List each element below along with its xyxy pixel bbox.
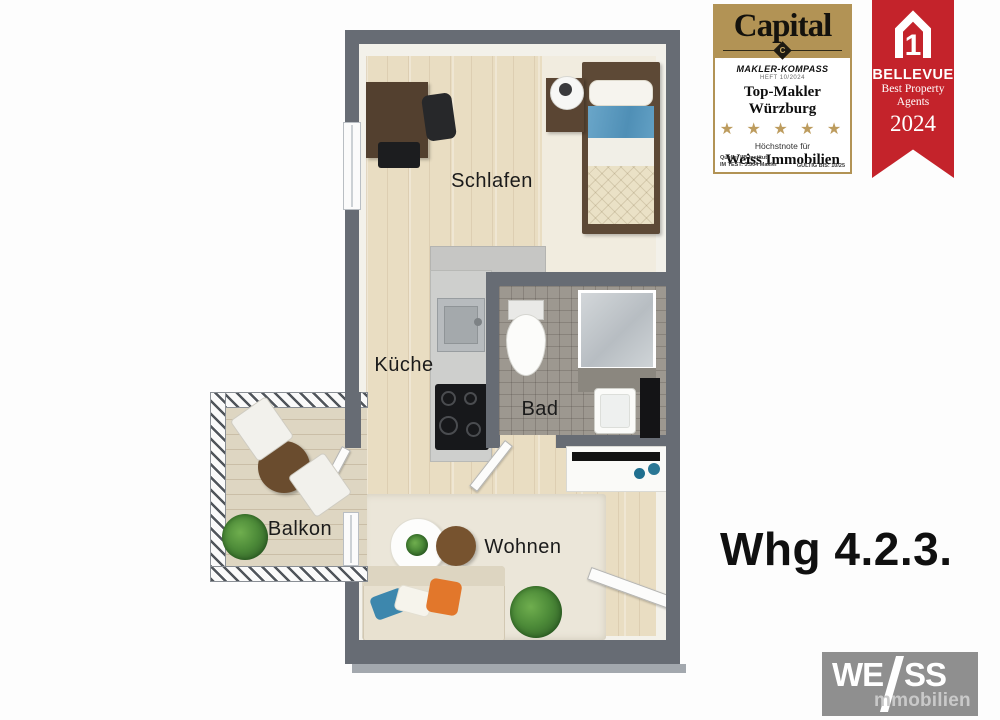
balcony-railing-bottom — [210, 566, 368, 582]
capital-source-line1: Quelle: IIB Institut — [720, 155, 777, 162]
shower — [578, 290, 656, 370]
capital-source-line2: IM TEST: 3.504 Makler — [720, 162, 777, 169]
burner-3 — [439, 416, 458, 435]
room-label-schlafen: Schlafen — [432, 170, 552, 193]
burner-4 — [466, 422, 481, 437]
capital-award-title: Top-Makler Würzburg — [715, 84, 850, 118]
logo-we-text: WE — [832, 656, 883, 694]
capital-brand-text: Capital — [734, 6, 832, 46]
house-number-text: 1 — [905, 29, 922, 60]
capital-subtitle: Höchstnote für — [715, 141, 850, 151]
desk-chair — [421, 92, 457, 142]
bath-wall-top — [486, 272, 666, 286]
balcony-junction-wall — [345, 392, 361, 448]
bed-sheet — [588, 138, 654, 166]
bath-cabinet-black — [640, 378, 660, 438]
sofa-pillow-orange — [425, 577, 462, 616]
capital-badge-body: MAKLER-KOMPASS HEFT 10/2024 Top-Makler W… — [715, 58, 850, 172]
bath-wall-bottom-left — [486, 435, 500, 448]
bed-quilt — [588, 166, 654, 224]
kitchen-faucet — [474, 318, 482, 326]
capital-issue-text: HEFT 10/2024 — [715, 75, 850, 81]
desk-stool — [378, 142, 420, 168]
window-left — [343, 122, 361, 210]
bellevue-award-line1: Best Property — [872, 83, 954, 96]
wall-top — [345, 30, 680, 44]
room-label-kueche: Küche — [354, 354, 454, 377]
wall-left-upper — [345, 30, 359, 410]
bellevue-brand-text: BELLEVUE — [872, 67, 954, 83]
bedside-lamp-top — [559, 83, 572, 96]
capital-emblem-letter: C — [776, 44, 789, 57]
apartment-number-label: Whg 4.2.3. — [720, 522, 952, 576]
weiss-immobilien-logo: WE SS mmobilien — [822, 652, 978, 716]
bed-blanket-blue — [588, 106, 654, 138]
floor-plant — [510, 586, 562, 638]
sideboard-shelf-black — [572, 452, 660, 461]
balcony-railing-left — [210, 392, 226, 582]
bellevue-award-ribbon: 1 BELLEVUE Best Property Agents 2024 — [872, 0, 954, 178]
five-stars-icon: ★ ★ ★ ★ ★ — [715, 119, 850, 139]
capital-fineprint: Quelle: IIB Institut IM TEST: 3.504 Makl… — [720, 155, 845, 169]
bellevue-year: 2024 — [872, 111, 954, 137]
wall-right — [666, 30, 680, 665]
capital-c-emblem-icon: C — [773, 41, 791, 59]
sideboard-bowl-2 — [648, 463, 660, 475]
wall-bottom-extrusion — [352, 664, 686, 673]
room-label-bad: Bad — [505, 398, 575, 421]
floorplan-image: Schlafen Küche Bad Wohnen Balkon Capital… — [0, 0, 1000, 720]
bed-pillow — [589, 80, 653, 106]
room-label-balkon: Balkon — [245, 518, 355, 541]
bath-wall-left — [486, 272, 499, 448]
burner-2 — [464, 392, 477, 405]
logo-immobilien-text: mmobilien — [874, 690, 971, 712]
table-plant — [406, 534, 428, 556]
kitchen-sink-basin — [444, 306, 478, 344]
room-label-wohnen: Wohnen — [463, 536, 583, 559]
logo-ss-text: SS — [904, 656, 946, 694]
capital-valid-text: GÜLTIG BIS: 10/25 — [797, 163, 845, 169]
sideboard-bowl-1 — [634, 468, 645, 479]
wall-bottom — [345, 640, 680, 664]
house-number-1-icon: 1 — [890, 8, 936, 60]
capital-award-badge: Capital C MAKLER-KOMPASS HEFT 10/2024 To… — [713, 4, 852, 174]
capital-source-lines: Quelle: IIB Institut IM TEST: 3.504 Makl… — [720, 155, 777, 169]
burner-1 — [441, 391, 456, 406]
capital-program-text: MAKLER-KOMPASS — [715, 64, 850, 74]
washbasin-bowl — [600, 394, 630, 428]
bellevue-award-line2: Agents — [872, 96, 954, 109]
